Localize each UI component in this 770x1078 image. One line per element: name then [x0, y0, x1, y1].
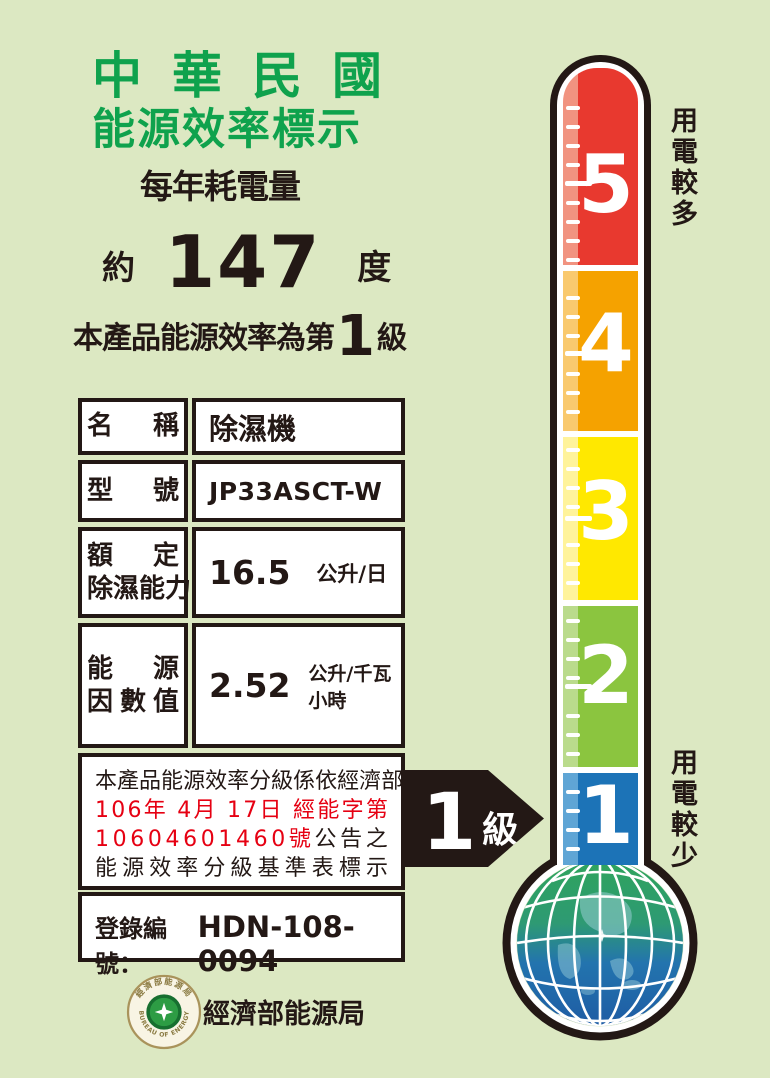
energy-label: 中華民國 能源效率標示 每年耗電量 約 147 度 本產品能源效率為第 1 級 …	[0, 0, 770, 1078]
tick-long	[565, 351, 592, 356]
thermometer-level-number: 1	[578, 776, 634, 856]
row-label-line: 因數值	[87, 686, 179, 719]
row-label-name: 名稱	[78, 398, 188, 455]
row-value-name: 除濕機	[192, 398, 405, 455]
table-row-model: 型號 JP33ASCT-W	[78, 460, 405, 522]
approx-prefix: 約	[102, 241, 135, 296]
row-label-line: 型號	[87, 475, 179, 508]
tick-small	[566, 581, 580, 585]
agency-name: 經濟部能源局	[203, 992, 365, 1031]
tick-long	[565, 516, 592, 521]
tick-small	[566, 619, 580, 623]
row-label-capacity: 額定除濕能力	[78, 527, 188, 618]
tick-small	[566, 163, 580, 167]
tick-small	[566, 315, 580, 319]
tick-small	[566, 144, 580, 148]
tick-small	[566, 790, 580, 794]
spec-table: 名稱 除濕機 型號 JP33ASCT-W 額定除濕能力 16.5 公升/日 能源…	[78, 398, 405, 962]
tick-small	[566, 448, 580, 452]
tick-small	[566, 733, 580, 737]
tick-small	[566, 239, 580, 243]
efficiency-thermometer: 54321	[550, 55, 651, 865]
table-row-energy-factor: 能源因數值 2.52 公升/千瓦小時	[78, 623, 405, 748]
energy-factor-value: 2.52	[209, 666, 290, 705]
annual-consumption-heading: 每年耗電量	[140, 160, 300, 208]
tick-small	[566, 334, 580, 338]
consumption-value: 147	[165, 228, 321, 296]
tick-small	[566, 220, 580, 224]
table-row-name: 名稱 除濕機	[78, 398, 405, 455]
grade-statement-suffix: 級	[377, 313, 406, 362]
row-value-model: JP33ASCT-W	[192, 460, 405, 522]
tick-small	[566, 505, 580, 509]
tick-long	[565, 601, 592, 606]
registration-number: HDN-108-0094	[198, 910, 401, 978]
tick-small	[566, 543, 580, 547]
tick-small	[566, 562, 580, 566]
tick-small	[566, 847, 580, 851]
tick-small	[566, 372, 580, 376]
legal-notice-line: 本產品能源效率分級係依經濟部	[95, 767, 388, 796]
grade-number: 1	[336, 312, 375, 362]
tick-small	[566, 752, 580, 756]
tick-small	[566, 676, 580, 680]
tick-small	[566, 258, 580, 262]
row-label-line: 除濕能力	[87, 573, 179, 606]
tick-small	[566, 125, 580, 129]
tick-small	[566, 410, 580, 414]
tick-small	[566, 486, 580, 490]
row-label-line: 能源	[87, 653, 179, 686]
tick-small	[566, 638, 580, 642]
tick-small	[566, 714, 580, 718]
legal-notice-line: 10604601460號公告之	[95, 825, 388, 854]
table-row-capacity: 額定除濕能力 16.5 公升/日	[78, 527, 405, 618]
tick-long	[565, 432, 592, 437]
consumption-unit: 度	[357, 240, 391, 296]
row-label-model: 型號	[78, 460, 188, 522]
tick-small	[566, 391, 580, 395]
row-label-line: 額定	[87, 540, 179, 573]
registration-row: 登錄編號： HDN-108-0094	[78, 892, 405, 962]
row-value-energy-factor: 2.52 公升/千瓦小時	[192, 623, 405, 748]
grade-statement-prefix: 本產品能源效率為第	[73, 313, 334, 362]
tick-small	[566, 201, 580, 205]
row-value-capacity: 16.5 公升/日	[192, 527, 405, 618]
tick-long	[565, 684, 592, 689]
tick-small	[566, 106, 580, 110]
label-title-line2: 能源效率標示	[92, 95, 362, 157]
energy-factor-unit: 公升/千瓦小時	[308, 659, 401, 713]
row-label-line: 名稱	[87, 410, 179, 443]
legal-notice-line: 能源效率分級基準表標示	[95, 854, 388, 883]
capacity-value: 16.5	[209, 553, 290, 592]
tick-long	[565, 768, 592, 773]
tick-long	[565, 181, 592, 186]
tick-small	[566, 467, 580, 471]
tick-small	[566, 296, 580, 300]
thermometer-tube: 54321	[563, 68, 638, 865]
more-power-label: 用電較多	[662, 106, 701, 230]
row-label-energy-factor: 能源因數值	[78, 623, 188, 748]
bureau-of-energy-seal-icon: 經濟部能源局 BUREAU OF ENERGY	[126, 974, 202, 1050]
thermometer-level-number: 3	[578, 472, 634, 552]
capacity-unit: 公升/日	[316, 558, 387, 588]
registration-label: 登錄編號：	[95, 909, 198, 979]
tick-long	[565, 266, 592, 271]
legal-notice-line: 106年 4月 17日 經能字第	[95, 796, 388, 825]
legal-notice: 本產品能源效率分級係依經濟部106年 4月 17日 經能字第1060460146…	[78, 753, 405, 890]
tick-small	[566, 809, 580, 813]
tick-small	[566, 657, 580, 661]
grade-statement: 本產品能源效率為第 1 級	[73, 312, 406, 362]
thermometer-level-number: 2	[578, 636, 634, 716]
model-number: JP33ASCT-W	[209, 477, 382, 506]
grade-arrow-number: 1	[422, 793, 476, 867]
annual-consumption-value-row: 約 147 度	[102, 228, 391, 296]
globe-icon	[492, 833, 708, 1059]
tick-small	[566, 828, 580, 832]
thermometer-level-number: 4	[578, 304, 634, 384]
product-name: 除濕機	[209, 406, 296, 448]
